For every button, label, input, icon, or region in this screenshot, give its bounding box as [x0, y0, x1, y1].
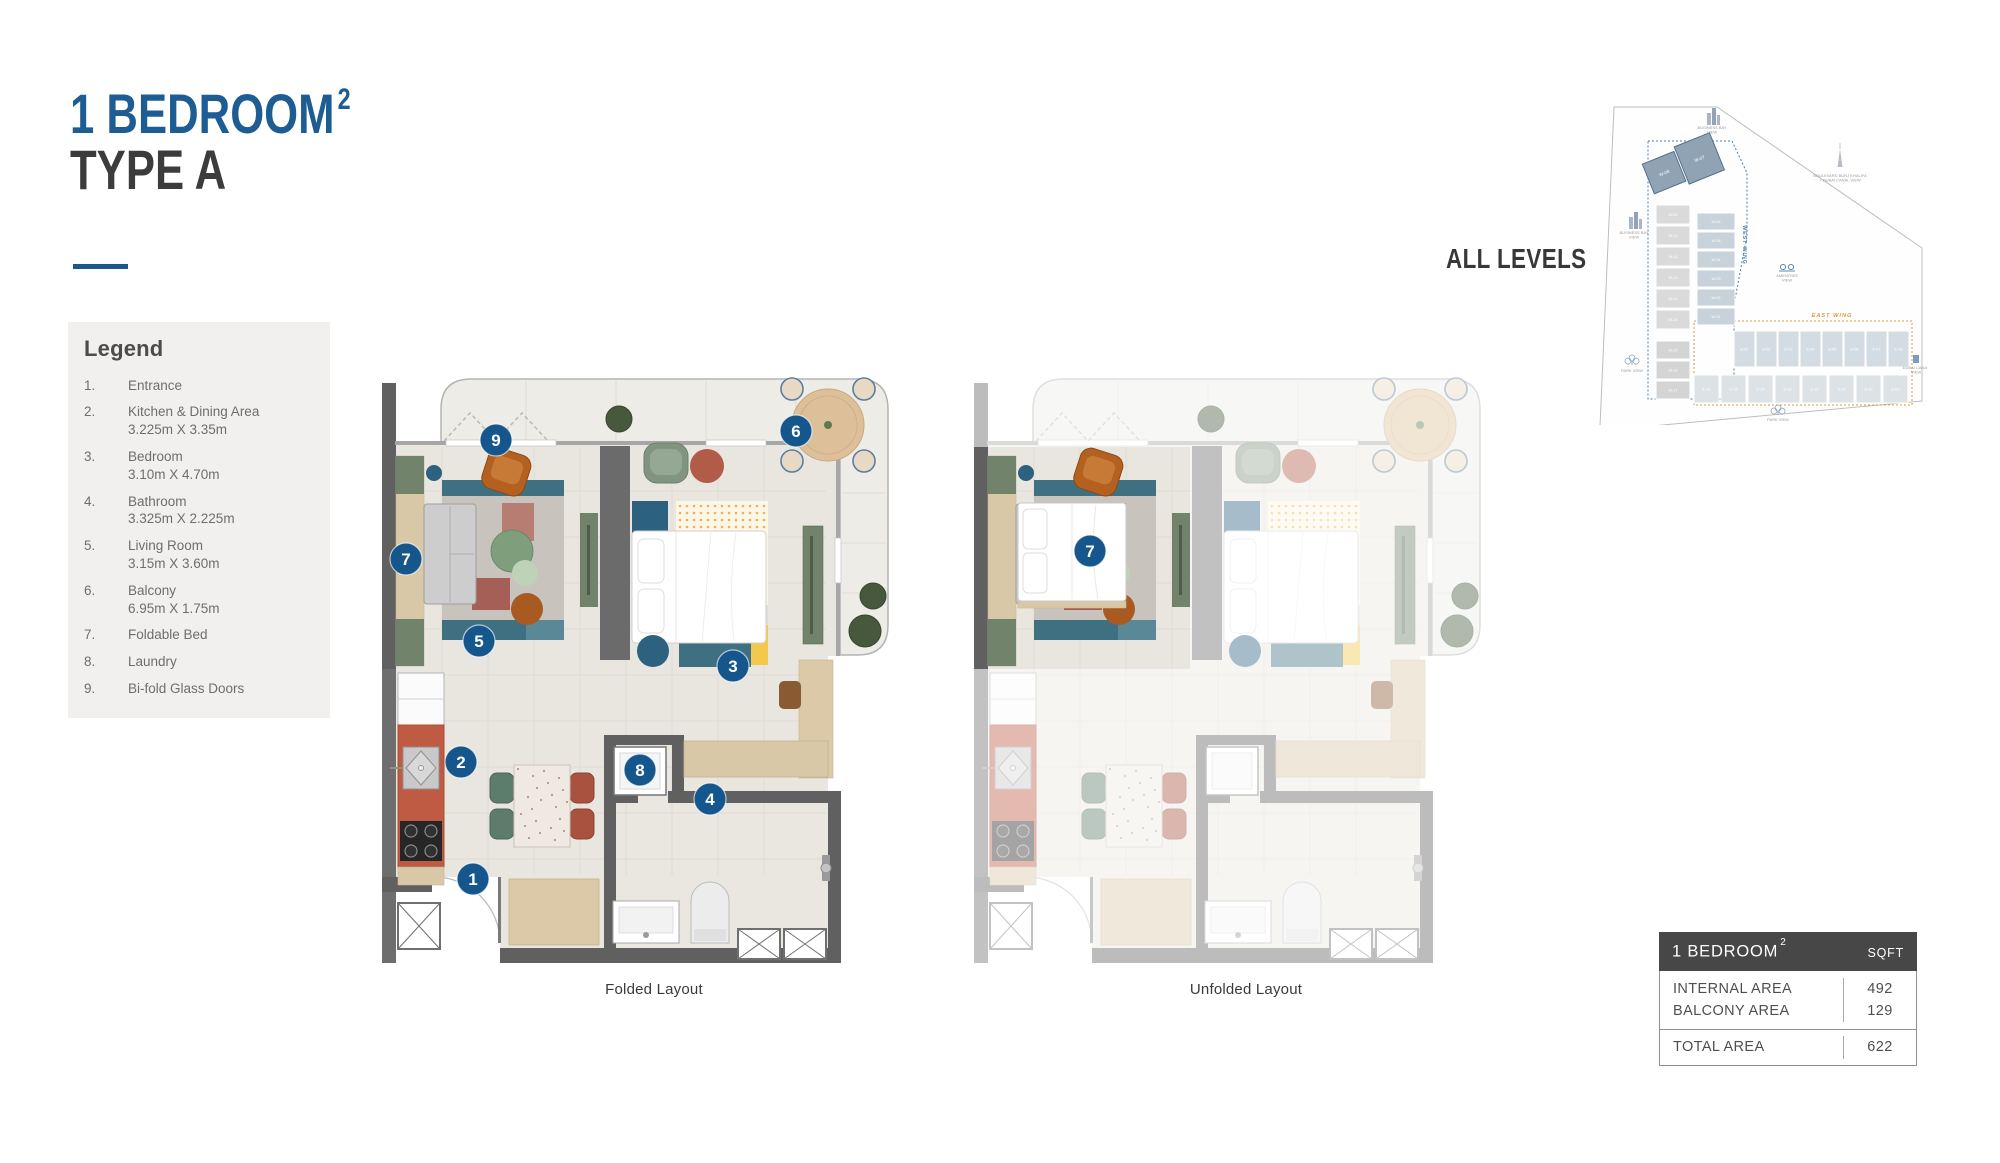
svg-text:W-14: W-14 — [1668, 318, 1677, 322]
legend-item: 5.Living Room3.15m X 3.60m — [68, 533, 330, 578]
area-table-rows: INTERNAL AREA492BALCONY AREA129 — [1660, 971, 1916, 1030]
table-row: INTERNAL AREA492 — [1660, 978, 1916, 1000]
site-unit: W-02 — [1697, 289, 1735, 306]
svg-text:3: 3 — [728, 657, 737, 676]
floorplan-page: { "header": { "title_line1": "1 BEDROOM"… — [0, 0, 2000, 1163]
site-unit: W-05 — [1697, 232, 1735, 249]
plan-badge-2: 2 — [445, 746, 477, 778]
svg-text:1: 1 — [468, 870, 477, 889]
site-unit: E-07 — [1866, 331, 1887, 367]
site-unit: E-13 — [1775, 375, 1800, 403]
svg-text:W-04: W-04 — [1711, 258, 1720, 262]
svg-text:E-05: E-05 — [1828, 347, 1836, 351]
site-unit: E-01 — [1734, 331, 1755, 367]
site-unit: E-14 — [1748, 375, 1773, 403]
plan-badge-5: 5 — [463, 625, 495, 657]
site-unit: E-02 — [1756, 331, 1777, 367]
svg-text:W-01: W-01 — [1711, 315, 1720, 319]
area-row-label: INTERNAL AREA — [1660, 978, 1843, 1000]
total-area-value: 622 — [1843, 1036, 1916, 1058]
table-row: BALCONY AREA129 — [1660, 1000, 1916, 1022]
legend-item-number: 5. — [84, 537, 128, 573]
area-table-header: 1 BEDROOM2 SQFT — [1659, 932, 1917, 971]
svg-text:W-05: W-05 — [1711, 239, 1720, 243]
svg-text:6: 6 — [791, 422, 800, 441]
site-unit: W-14 — [1656, 310, 1690, 329]
site-unit: E-10 — [1856, 375, 1881, 403]
floorplan-folded: 123456789 — [376, 363, 932, 963]
svg-text:2: 2 — [456, 753, 465, 772]
site-unit: E-12 — [1802, 375, 1827, 403]
svg-text:E-09: E-09 — [1891, 387, 1899, 391]
page-title: 1 BEDROOM2 TYPE A — [70, 86, 426, 198]
legend-item-dimensions: 3.225m X 3.35m — [128, 421, 259, 439]
svg-text:E-16: E-16 — [1702, 387, 1710, 391]
legend-item-label: Foldable Bed — [128, 626, 208, 644]
legend-item-dimensions: 3.325m X 2.225m — [128, 510, 235, 528]
site-unit: W-09 — [1656, 205, 1690, 224]
caption-unfolded-layout: Unfolded Layout — [968, 981, 1524, 998]
park-view-label: PARK VIEW — [1767, 417, 1789, 422]
site-unit: W-12 — [1656, 268, 1690, 287]
area-table-total: TOTAL AREA 622 — [1660, 1029, 1916, 1064]
site-unit: E-03 — [1778, 331, 1799, 367]
legend-item-number: 1. — [84, 377, 128, 395]
legend-item: 8.Laundry — [68, 649, 330, 676]
svg-text:W-17: W-17 — [1668, 388, 1677, 392]
legend-item: 1.Entrance — [68, 372, 330, 399]
area-row-label: BALCONY AREA — [1660, 1000, 1843, 1022]
site-unit: W-06 — [1697, 213, 1735, 230]
floorplan-unfolded: 7 — [968, 363, 1524, 963]
legend-list: 1.Entrance2.Kitchen & Dining Area3.225m … — [68, 372, 330, 702]
caption-folded-layout: Folded Layout — [376, 981, 932, 998]
svg-text:W-13: W-13 — [1668, 297, 1677, 301]
area-table-title: 1 BEDROOM2 — [1672, 942, 1785, 962]
floorplan-folded-svg: 123456789 — [376, 363, 932, 963]
svg-text:E-03: E-03 — [1784, 347, 1792, 351]
svg-text:W-12: W-12 — [1668, 276, 1677, 280]
site-unit: W-01 — [1697, 308, 1735, 325]
site-unit: E-16 — [1694, 375, 1719, 403]
site-unit: W-03 — [1697, 270, 1735, 287]
site-unit: E-08 — [1888, 331, 1909, 367]
svg-text:W-16: W-16 — [1668, 368, 1677, 372]
svg-text:E-08: E-08 — [1894, 347, 1902, 351]
plan-badge-9: 9 — [480, 424, 512, 456]
site-unit: E-15 — [1721, 375, 1746, 403]
site-key-plan: W-09W-10W-11W-12W-13W-14W-15W-16W-17W-06… — [1582, 95, 1927, 425]
legend-item-dimensions: 6.95m X 1.75m — [128, 600, 220, 618]
plan-badge-7: 7 — [390, 543, 422, 575]
legend-item-number: 3. — [84, 448, 128, 484]
legend-item-dimensions: 3.10m X 4.70m — [128, 466, 220, 484]
tower-icon — [1838, 143, 1843, 167]
legend-item-label: Laundry — [128, 653, 177, 671]
area-row-value: 129 — [1843, 1000, 1916, 1022]
svg-text:W-10: W-10 — [1668, 234, 1677, 238]
legend-panel: Legend 1.Entrance2.Kitchen & Dining Area… — [68, 322, 330, 718]
plan-badge-6: 6 — [780, 415, 812, 447]
site-unit: E-05 — [1822, 331, 1843, 367]
svg-text:7: 7 — [1085, 542, 1094, 561]
svg-text:9: 9 — [491, 431, 500, 450]
legend-item-number: 6. — [84, 582, 128, 618]
canal-icon — [1913, 355, 1919, 363]
plan-badge-7: 7 — [1074, 535, 1106, 567]
legend-item-label: Bathroom3.325m X 2.225m — [128, 493, 235, 529]
legend-item-number: 7. — [84, 626, 128, 644]
svg-text:7: 7 — [401, 550, 410, 569]
site-unit: W-11 — [1656, 247, 1690, 266]
svg-text:W-09: W-09 — [1668, 213, 1677, 217]
legend-item-label: Balcony6.95m X 1.75m — [128, 582, 220, 618]
area-row-value: 492 — [1843, 978, 1916, 1000]
legend-item: 3.Bedroom3.10m X 4.70m — [68, 443, 330, 488]
svg-text:E-10: E-10 — [1864, 387, 1872, 391]
site-unit: W-13 — [1656, 289, 1690, 308]
legend-item: 7.Foldable Bed — [68, 622, 330, 649]
title-accent-dash — [73, 264, 128, 269]
svg-text:4: 4 — [705, 790, 715, 809]
site-unit: W-10 — [1656, 226, 1690, 245]
west-wing-label: WEST WING — [1741, 225, 1747, 265]
legend-item-label: Entrance — [128, 377, 182, 395]
legend-item: 9.Bi-fold Glass Doors — [68, 676, 330, 703]
site-unit: W-17 — [1656, 381, 1690, 399]
east-wing-label: EAST WING — [1812, 313, 1853, 319]
site-unit: E-11 — [1829, 375, 1854, 403]
svg-text:E-13: E-13 — [1783, 387, 1791, 391]
site-unit: W-16 — [1656, 361, 1690, 379]
legend-item-number: 9. — [84, 680, 128, 698]
legend-item: 4.Bathroom3.325m X 2.225m — [68, 488, 330, 533]
svg-text:E-12: E-12 — [1810, 387, 1818, 391]
legend-item-number: 4. — [84, 493, 128, 529]
legend-heading: Legend — [84, 336, 330, 362]
svg-text:8: 8 — [635, 761, 644, 780]
title-line-2: TYPE A — [70, 142, 348, 198]
all-levels-heading: ALL LEVELS — [1446, 243, 1587, 275]
total-area-label: TOTAL AREA — [1660, 1036, 1843, 1058]
title-line-1: 1 BEDROOM2 — [70, 86, 348, 142]
site-unit: E-06 — [1844, 331, 1865, 367]
legend-item-label: Living Room3.15m X 3.60m — [128, 537, 220, 573]
svg-text:E-11: E-11 — [1838, 387, 1846, 391]
boulevard-view-label: BOULEVARD BURJ KHALIFA+ DUBAI CANAL VIEW — [1813, 173, 1867, 183]
svg-text:E-02: E-02 — [1762, 347, 1770, 351]
table-row: TOTAL AREA 622 — [1660, 1036, 1916, 1058]
svg-text:W-06: W-06 — [1711, 220, 1720, 224]
site-unit: W-04 — [1697, 251, 1735, 268]
svg-text:E-07: E-07 — [1872, 347, 1880, 351]
legend-item-label: Bi-fold Glass Doors — [128, 680, 244, 698]
title-superscript: 2 — [338, 83, 351, 116]
legend-item-number: 2. — [84, 403, 128, 439]
svg-text:W-02: W-02 — [1711, 296, 1720, 300]
site-unit: E-04 — [1800, 331, 1821, 367]
park-view-label: PARK VIEW — [1621, 368, 1643, 373]
svg-text:E-06: E-06 — [1850, 347, 1858, 351]
plan-badge-1: 1 — [457, 863, 489, 895]
area-table: 1 BEDROOM2 SQFT INTERNAL AREA492BALCONY … — [1659, 932, 1917, 1066]
svg-text:W-11: W-11 — [1669, 255, 1678, 259]
floorplan-unfolded-svg: 7 — [968, 363, 1524, 963]
legend-item: 6.Balcony6.95m X 1.75m — [68, 577, 330, 622]
svg-text:W-03: W-03 — [1711, 277, 1720, 281]
area-table-body: INTERNAL AREA492BALCONY AREA129 TOTAL AR… — [1659, 971, 1917, 1066]
legend-item: 2.Kitchen & Dining Area3.225m X 3.35m — [68, 399, 330, 444]
svg-text:E-01: E-01 — [1740, 347, 1748, 351]
site-unit: E-09 — [1883, 375, 1908, 403]
svg-text:5: 5 — [474, 632, 483, 651]
legend-item-number: 8. — [84, 653, 128, 671]
legend-item-label: Bedroom3.10m X 4.70m — [128, 448, 220, 484]
unfolded-bed — [1018, 503, 1126, 608]
svg-text:E-14: E-14 — [1756, 387, 1764, 391]
svg-text:E-15: E-15 — [1729, 387, 1737, 391]
area-table-unit: SQFT — [1867, 946, 1904, 960]
plan-badge-8: 8 — [624, 754, 656, 786]
svg-text:W-15: W-15 — [1668, 348, 1677, 352]
legend-item-label: Kitchen & Dining Area3.225m X 3.35m — [128, 403, 259, 439]
legend-item-dimensions: 3.15m X 3.60m — [128, 555, 220, 573]
svg-text:E-04: E-04 — [1806, 347, 1814, 351]
site-unit: W-15 — [1656, 341, 1690, 359]
plan-badge-4: 4 — [694, 783, 726, 815]
site-key-plan-svg: W-09W-10W-11W-12W-13W-14W-15W-16W-17W-06… — [1582, 95, 1927, 425]
plan-badge-3: 3 — [717, 650, 749, 682]
